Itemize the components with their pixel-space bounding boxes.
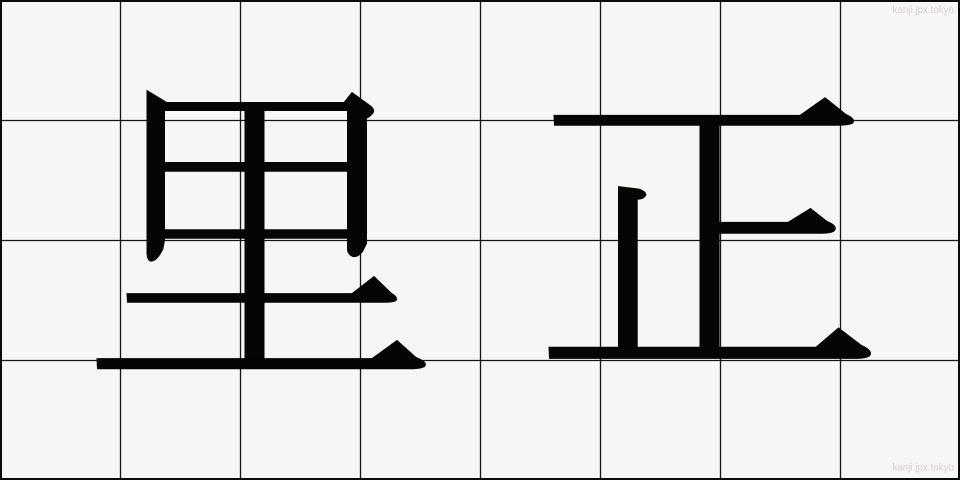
svg-text:kanji.jpx.tokyo: kanji.jpx.tokyo (892, 462, 954, 473)
svg-text:kanji.jpx.tokyo: kanji.jpx.tokyo (892, 5, 954, 16)
